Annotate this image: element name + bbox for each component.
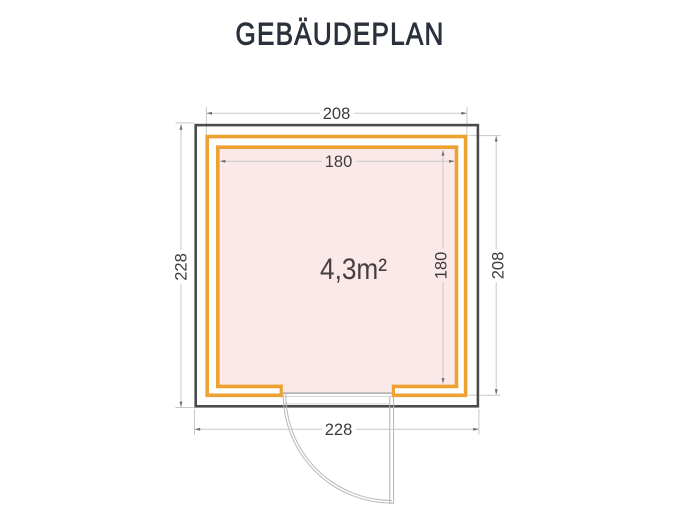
svg-text:180: 180: [433, 252, 451, 280]
svg-text:208: 208: [323, 105, 351, 123]
svg-text:228: 228: [325, 421, 353, 439]
svg-text:208: 208: [489, 252, 507, 280]
svg-text:GEBÄUDEPLAN: GEBÄUDEPLAN: [236, 16, 445, 52]
svg-text:180: 180: [325, 153, 353, 171]
svg-text:228: 228: [172, 253, 190, 281]
svg-text:4,3m²: 4,3m²: [320, 253, 387, 286]
